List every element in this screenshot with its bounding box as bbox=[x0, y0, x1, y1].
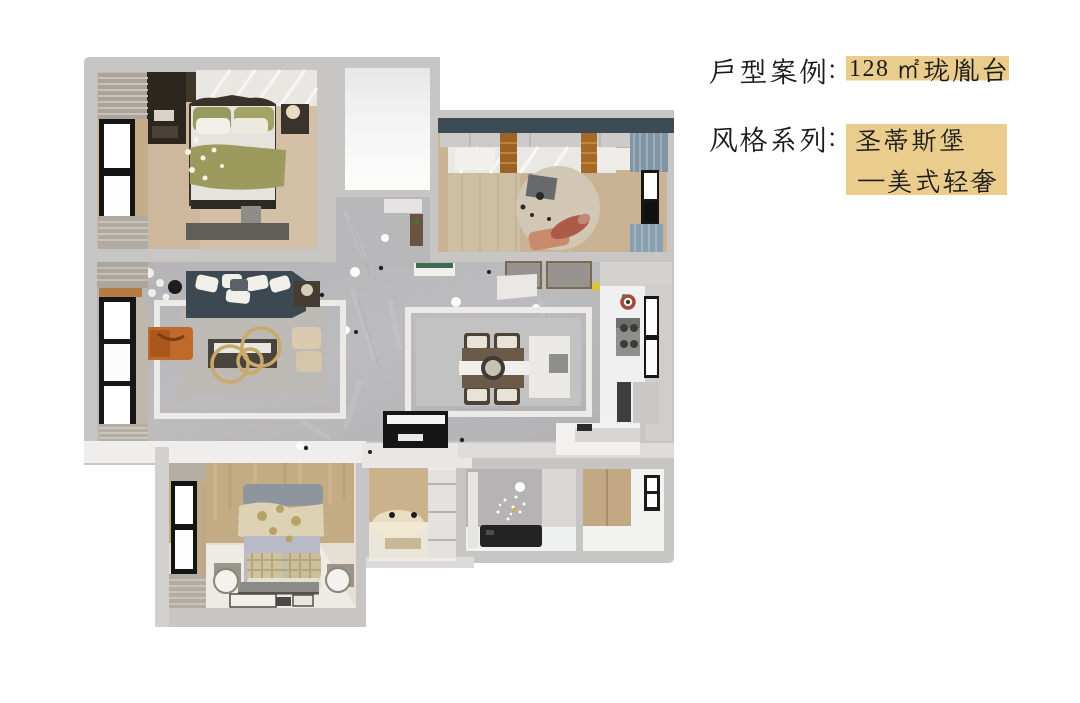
svg-text:128: 128 bbox=[849, 56, 890, 82]
